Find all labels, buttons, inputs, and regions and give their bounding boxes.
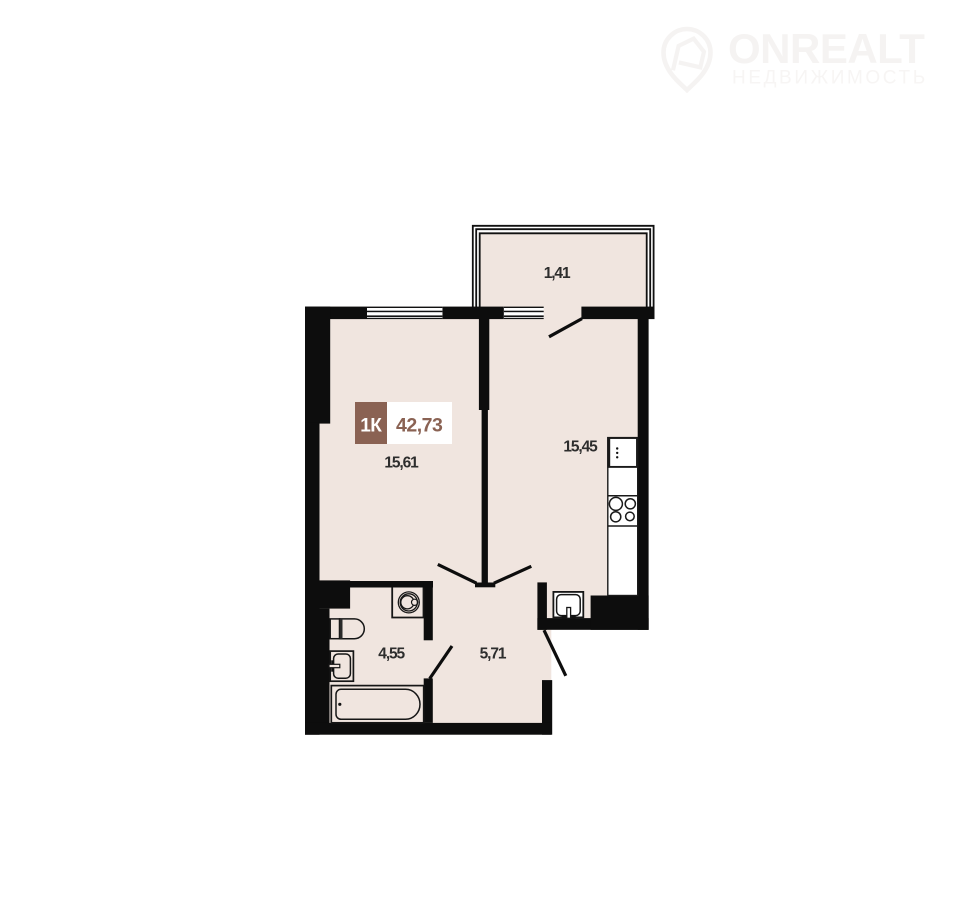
svg-text:НЕДВИЖИМОСТЬ: НЕДВИЖИМОСТЬ xyxy=(732,68,928,89)
svg-text:15,61: 15,61 xyxy=(384,454,419,471)
svg-text:1К: 1К xyxy=(360,415,382,436)
svg-text:ONREALT: ONREALT xyxy=(728,25,925,72)
svg-text:1,41: 1,41 xyxy=(544,265,571,282)
svg-text:15,45: 15,45 xyxy=(563,438,598,455)
svg-text:42,73: 42,73 xyxy=(396,414,443,436)
svg-text:4,55: 4,55 xyxy=(378,646,405,663)
svg-text:5,71: 5,71 xyxy=(480,646,507,663)
